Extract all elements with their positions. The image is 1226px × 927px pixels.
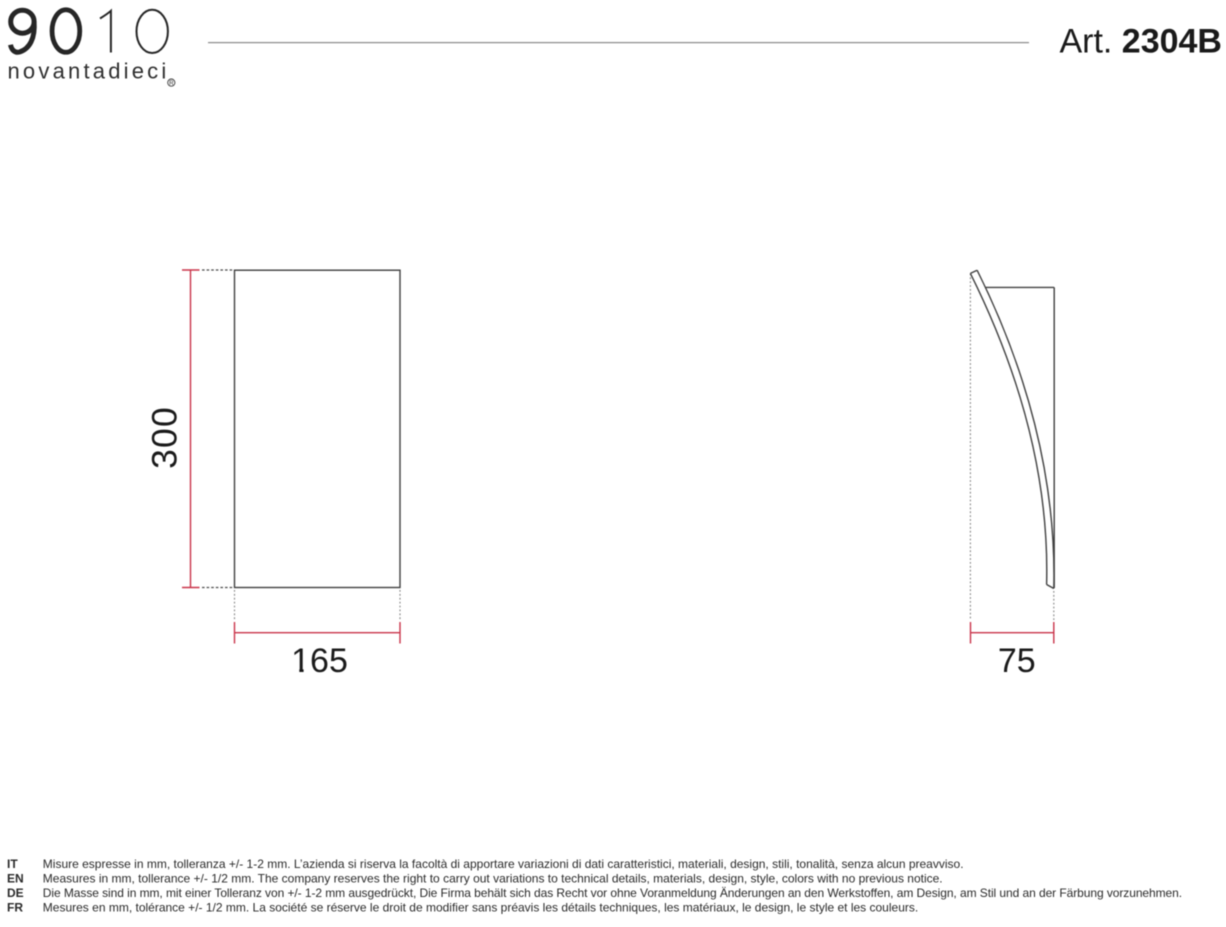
svg-text:DE: DE — [7, 886, 24, 900]
svg-text:Misure espresse in mm, tollera: Misure espresse in mm, tolleranza +/- 1-… — [43, 857, 964, 871]
svg-text:R: R — [169, 80, 174, 87]
svg-text:Measures in mm, tollerance +/-: Measures in mm, tollerance +/- 1/2 mm. T… — [43, 872, 943, 886]
svg-text:75: 75 — [998, 642, 1036, 680]
svg-text:300: 300 — [145, 406, 185, 469]
svg-text:Mesures en mm, tolérance +/- 1: Mesures en mm, tolérance +/- 1/2 mm. La … — [43, 900, 918, 914]
svg-text:FR: FR — [7, 900, 23, 914]
svg-text:EN: EN — [7, 872, 24, 886]
svg-text:Die Masse sind in mm, mit eine: Die Masse sind in mm, mit einer Tolleran… — [43, 886, 1182, 900]
svg-text:IT: IT — [7, 857, 18, 871]
svg-text:165: 165 — [291, 642, 348, 680]
svg-text:novantadieci: novantadieci — [8, 58, 170, 83]
svg-text:Art. 2304B: Art. 2304B — [1059, 23, 1222, 61]
